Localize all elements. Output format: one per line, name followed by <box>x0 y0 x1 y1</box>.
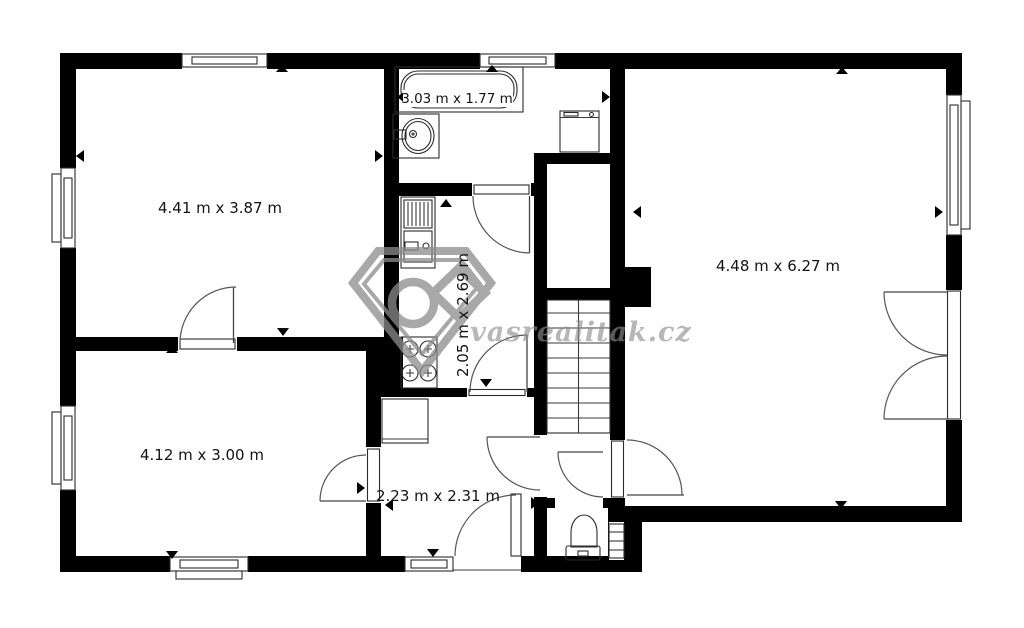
floorplan-drawing: vasrealitak.cz 4.41 m x 3.87 m 3.03 m x … <box>0 0 1024 628</box>
label-room-bottom-left: 4.12 m x 3.00 m <box>140 446 264 464</box>
window-top-left-room <box>182 54 267 67</box>
wash-basin-icon <box>393 114 439 158</box>
label-room-top-left: 4.41 m x 3.87 m <box>158 199 282 217</box>
room-labels: 4.41 m x 3.87 m 3.03 m x 1.77 m 2.05 m x… <box>140 90 840 505</box>
washing-machine-icon <box>560 111 599 152</box>
window-wc <box>609 524 624 558</box>
door-wc <box>558 452 603 497</box>
french-door-right-room <box>884 291 961 419</box>
door-bottom-left-room <box>320 449 380 501</box>
kitchen-sink-counter-icon <box>401 197 435 268</box>
window-hall-bottom <box>405 557 453 571</box>
dimension-arrows <box>76 65 943 559</box>
hall-cabinet-icon <box>382 399 428 443</box>
floorplan-page: vasrealitak.cz 4.41 m x 3.87 m 3.03 m x … <box>0 0 1024 628</box>
label-entrance-hall: 2.23 m x 2.31 m <box>376 487 500 505</box>
window-left-upper <box>52 168 75 248</box>
window-left-lower <box>52 406 75 490</box>
toilet-icon <box>566 515 600 560</box>
window-right-room <box>947 95 970 235</box>
window-bathroom <box>480 54 555 67</box>
door-right-room <box>612 440 685 497</box>
window-bottom-left-room <box>170 557 248 579</box>
label-bathroom: 3.03 m x 1.77 m <box>401 91 513 107</box>
door-top-left-room <box>180 287 236 349</box>
door-hall-to-stair-lobby <box>487 437 540 490</box>
watermark-brand-text: vasrealitak.cz <box>470 317 692 348</box>
label-room-right: 4.48 m x 6.27 m <box>716 257 840 275</box>
label-kitchen-hall: 2.05 m x 2.69 m <box>454 253 472 377</box>
